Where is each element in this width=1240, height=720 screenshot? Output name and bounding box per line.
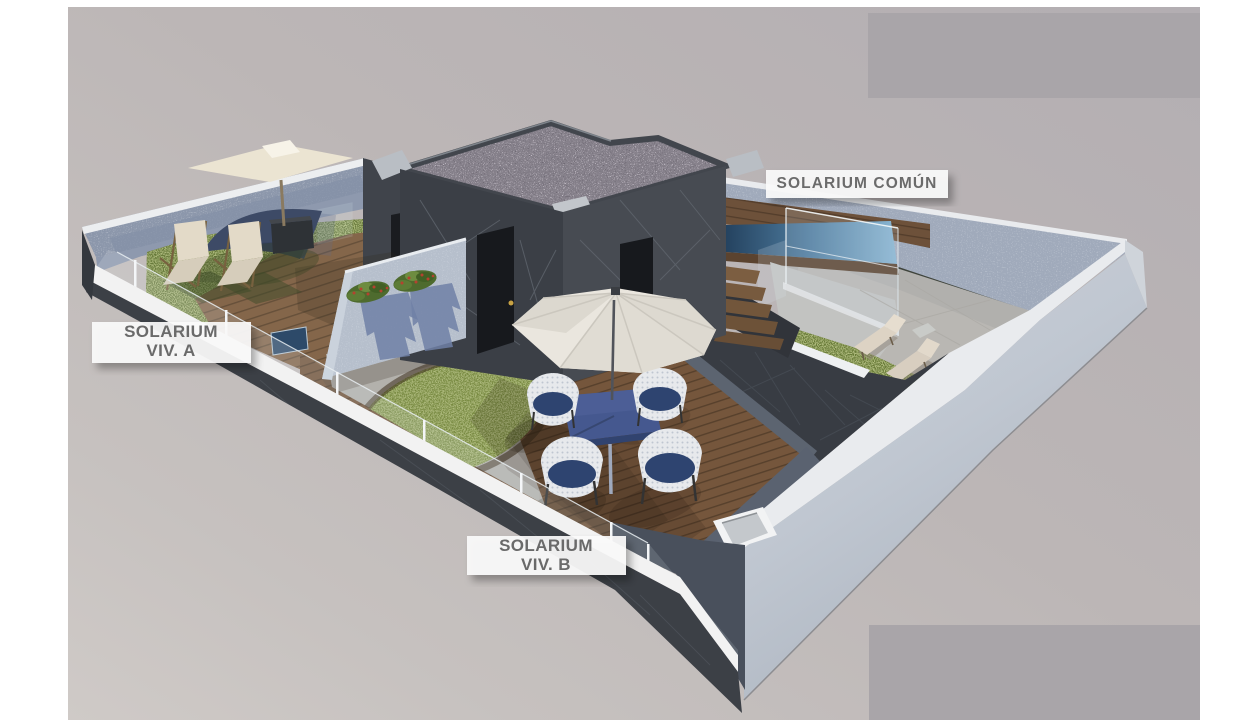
svg-text:SOLARIUM: SOLARIUM: [124, 322, 218, 341]
svg-text:VIV. A: VIV. A: [146, 341, 195, 360]
svg-text:SOLARIUM COMÚN: SOLARIUM COMÚN: [777, 174, 938, 192]
svg-text:SOLARIUM: SOLARIUM: [499, 536, 593, 555]
svg-text:VIV. B: VIV. B: [521, 555, 571, 574]
